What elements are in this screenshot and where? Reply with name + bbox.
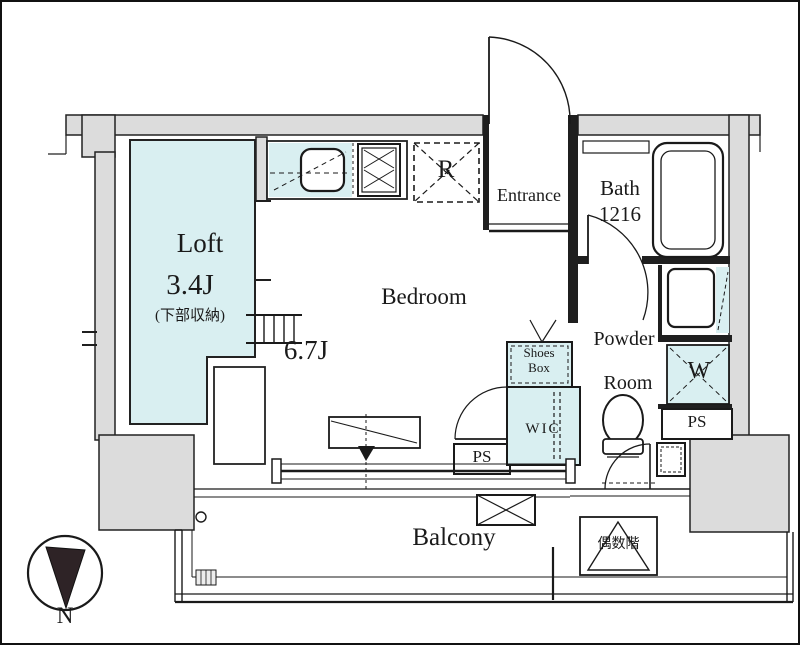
pipe-shaft-box-window bbox=[454, 444, 510, 474]
under-loft-storage bbox=[214, 367, 265, 464]
washbasin-icon bbox=[668, 269, 714, 327]
toilet-bowl-icon bbox=[603, 395, 643, 445]
wic-area bbox=[507, 387, 580, 465]
bath-counter bbox=[583, 141, 649, 153]
entrance-area bbox=[489, 37, 570, 231]
wic-door-swing bbox=[455, 387, 507, 439]
pipe-shaft-box-right bbox=[662, 409, 732, 439]
shoes-box-area bbox=[507, 342, 572, 387]
compass-icon bbox=[28, 536, 102, 610]
drain-hole-icon bbox=[196, 512, 206, 522]
bathtub-icon bbox=[653, 143, 723, 257]
bath-door-swing bbox=[588, 215, 648, 320]
evacuation-ladder-box bbox=[580, 517, 657, 575]
kitchen-sink-icon bbox=[301, 149, 344, 191]
loft-area bbox=[130, 140, 265, 464]
section-marker-icon bbox=[358, 446, 375, 461]
floor-plan-canvas: Loft 3.4J (下部収納) Bedroom 6.7J Entrance B… bbox=[0, 0, 800, 645]
refrigerator-space bbox=[414, 143, 479, 202]
toilet-tank bbox=[603, 439, 643, 454]
floor-plan-drawing bbox=[2, 2, 798, 643]
stove-icon bbox=[358, 144, 400, 196]
entrance-door-swing bbox=[489, 37, 570, 124]
